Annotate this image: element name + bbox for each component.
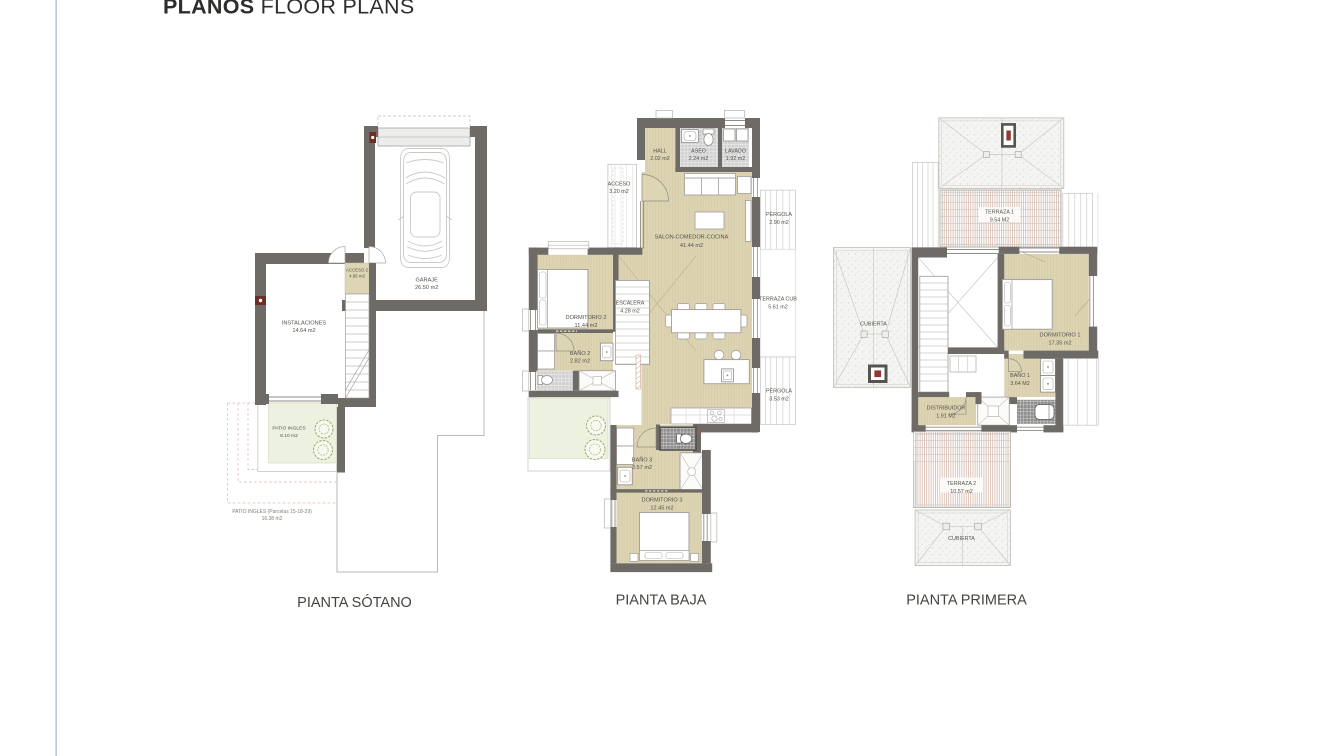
svg-text:41.44 m2: 41.44 m2 (680, 243, 703, 249)
svg-text:ESCALERA: ESCALERA (616, 301, 645, 307)
svg-text:TERRAZA 2: TERRAZA 2 (947, 481, 976, 487)
svg-text:ACCESO: ACCESO (608, 182, 631, 188)
svg-text:LAVADO: LAVADO (725, 149, 746, 155)
svg-text:PÉRGOLA: PÉRGOLA (766, 388, 792, 395)
svg-text:1.91 M2: 1.91 M2 (936, 414, 955, 420)
svg-text:4.28 m2: 4.28 m2 (620, 309, 639, 315)
svg-text:SALON-COMEDOR-COCINA: SALON-COMEDOR-COCINA (655, 235, 729, 241)
svg-text:DISTRIBUIDOR: DISTRIBUIDOR (927, 406, 966, 412)
svg-text:ACCESO 2: ACCESO 2 (346, 268, 369, 273)
svg-text:PIANTA SÓTANO: PIANTA SÓTANO (297, 594, 412, 611)
svg-text:CUBIERTA: CUBIERTA (948, 536, 975, 542)
svg-text:2.24 m2: 2.24 m2 (689, 156, 708, 162)
svg-text:16.38 m2: 16.38 m2 (262, 516, 283, 522)
svg-text:2.82 m2: 2.82 m2 (570, 359, 590, 365)
svg-text:12.45 m2: 12.45 m2 (650, 506, 673, 512)
svg-text:26.50 m2: 26.50 m2 (415, 285, 438, 291)
svg-text:ASEO: ASEO (691, 149, 706, 155)
svg-text:DORMITORIO 1: DORMITORIO 1 (1040, 333, 1081, 339)
svg-text:INSTALACIONES: INSTALACIONES (282, 321, 327, 327)
svg-text:3.20 m2: 3.20 m2 (609, 189, 628, 195)
svg-text:17.35 m2: 17.35 m2 (1048, 341, 1071, 347)
svg-text:11.44 m2: 11.44 m2 (575, 323, 598, 329)
svg-text:PIANTA BAJA: PIANTA BAJA (616, 593, 707, 609)
svg-text:PIANTA PRIMERA: PIANTA PRIMERA (906, 593, 1027, 609)
svg-text:BAÑO 1: BAÑO 1 (1010, 372, 1030, 379)
svg-text:PÉRGOLA: PÉRGOLA (766, 211, 792, 218)
svg-text:PLANOS FLOOR PLANS: PLANOS FLOOR PLANS (163, 0, 415, 19)
svg-text:HALL: HALL (653, 149, 667, 155)
svg-text:2.90 m2: 2.90 m2 (769, 220, 788, 226)
svg-text:4.95 m2: 4.95 m2 (349, 274, 365, 279)
svg-text:DORMITORIO 2: DORMITORIO 2 (566, 315, 607, 321)
svg-text:8.10 m2: 8.10 m2 (280, 433, 298, 439)
svg-text:3.57 m2: 3.57 m2 (632, 465, 652, 471)
svg-text:DORMITORIO 3: DORMITORIO 3 (642, 498, 683, 504)
svg-text:BAÑO 3: BAÑO 3 (632, 457, 653, 464)
svg-text:3.64 M2: 3.64 M2 (1010, 381, 1029, 387)
svg-text:14.64 m2: 14.64 m2 (292, 328, 315, 334)
svg-text:GARAJE: GARAJE (416, 278, 439, 284)
svg-text:2.02 m2: 2.02 m2 (650, 156, 669, 162)
svg-text:3.53 m2: 3.53 m2 (769, 397, 788, 403)
svg-text:5.61 m2: 5.61 m2 (768, 305, 787, 311)
svg-text:TERRAZA 1: TERRAZA 1 (985, 210, 1014, 216)
svg-text:9.54 M2: 9.54 M2 (990, 218, 1009, 224)
svg-text:PATIO INGLES (Parcelas 15-18-2: PATIO INGLES (Parcelas 15-18-29) (232, 509, 312, 515)
svg-text:PATIO INGLES: PATIO INGLES (272, 426, 306, 432)
svg-text:1.92 m2: 1.92 m2 (726, 156, 745, 162)
svg-text:CUBIERTA: CUBIERTA (860, 322, 887, 328)
svg-text:10.57 m2: 10.57 m2 (950, 489, 972, 495)
svg-text:TERRAZA CUB: TERRAZA CUB (759, 297, 797, 303)
